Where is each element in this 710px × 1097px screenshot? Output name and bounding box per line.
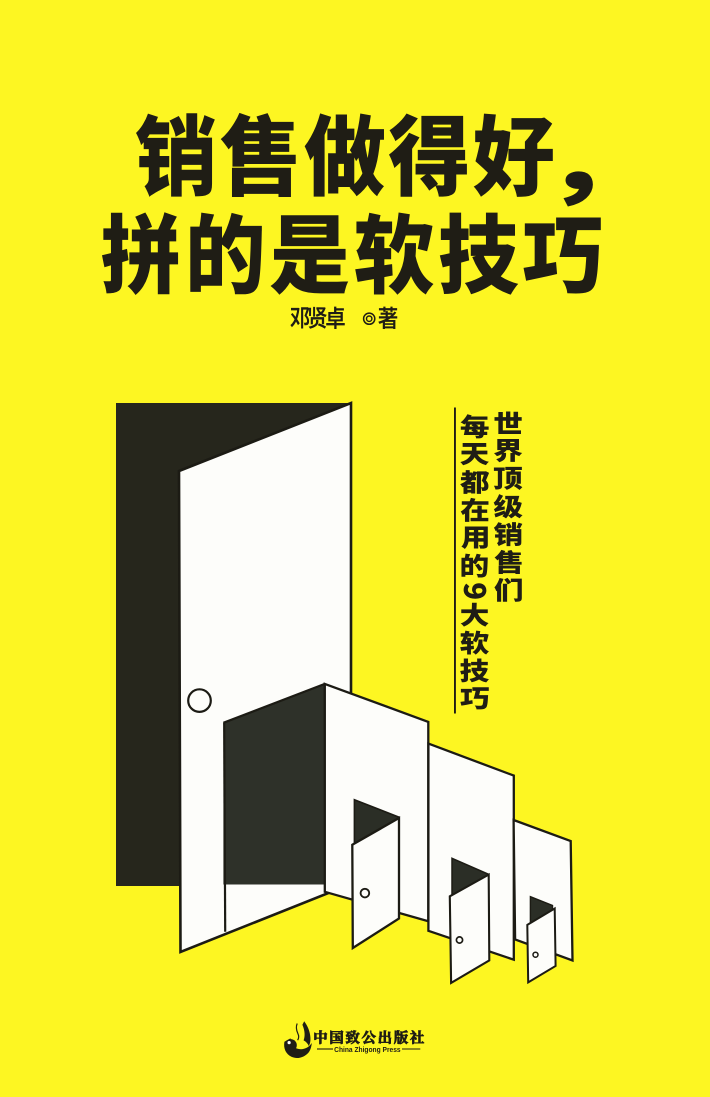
svg-text:China Zhigong Press: China Zhigong Press [334, 1045, 401, 1054]
